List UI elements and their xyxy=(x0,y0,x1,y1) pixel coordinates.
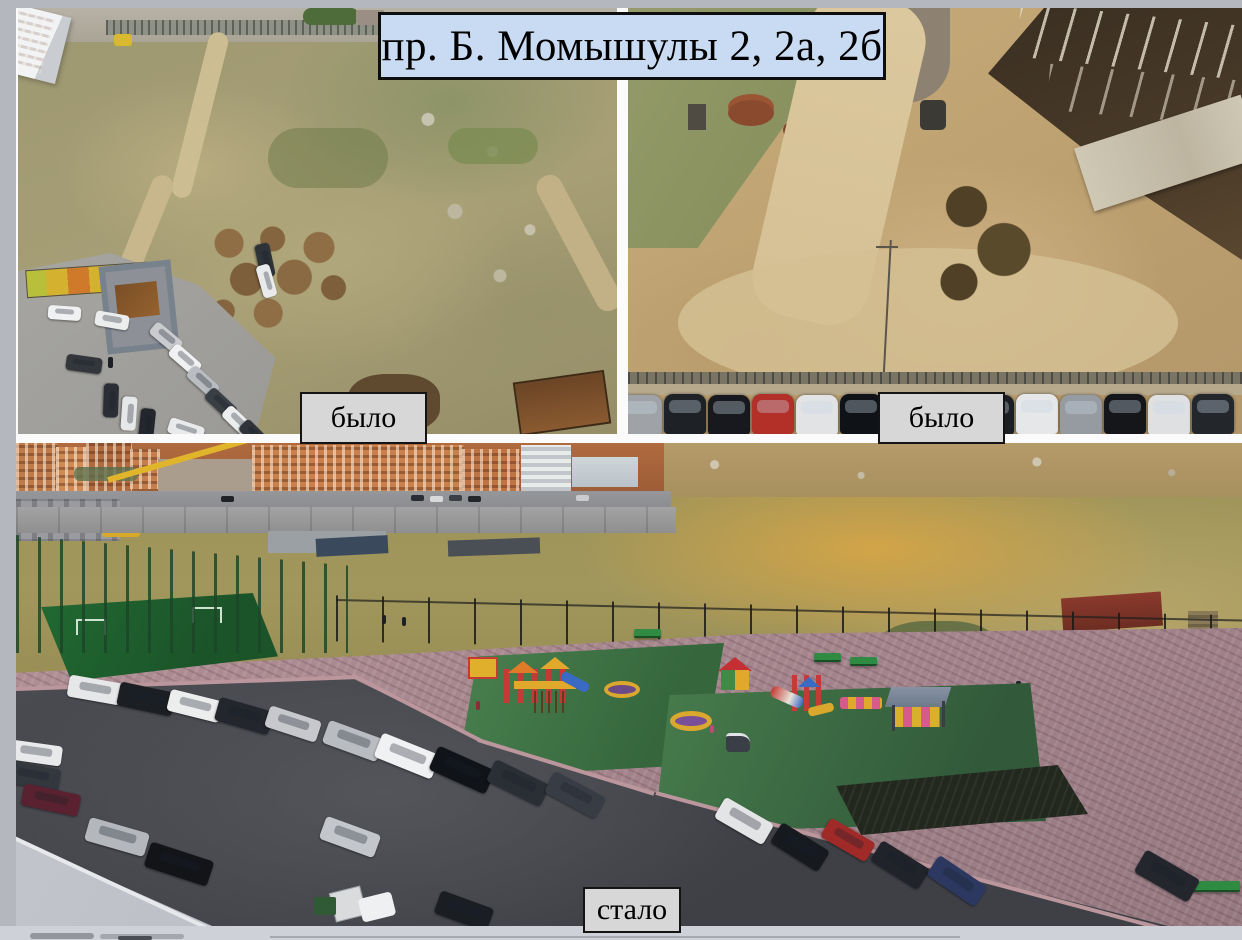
street-car xyxy=(576,495,589,501)
light-buildings xyxy=(572,457,638,487)
gazebo-post xyxy=(942,701,945,727)
slide-complex xyxy=(768,675,834,743)
spring-riders xyxy=(840,697,882,709)
thumbnail-sliver xyxy=(270,936,960,938)
rusty-shed xyxy=(513,370,612,434)
person xyxy=(108,357,113,368)
brick-building xyxy=(16,443,58,493)
sports-fence-posts xyxy=(16,535,348,653)
car xyxy=(1016,394,1058,434)
soil-piles xyxy=(914,178,1064,308)
dark-trailer xyxy=(448,537,541,556)
building-windows xyxy=(18,9,55,74)
car xyxy=(1192,394,1234,434)
car xyxy=(752,394,794,434)
pipe-rings xyxy=(728,100,774,126)
white-building xyxy=(521,445,571,491)
site-fence xyxy=(628,372,1242,384)
rusty-structure xyxy=(115,281,160,319)
gazebo-post xyxy=(892,705,895,731)
street-car xyxy=(430,496,443,502)
child xyxy=(476,701,480,710)
playhouse xyxy=(716,657,754,691)
play-structure xyxy=(504,651,590,717)
dumpster xyxy=(314,897,336,915)
carousel xyxy=(670,711,712,731)
sports-field xyxy=(16,535,348,685)
car xyxy=(1104,394,1146,434)
school-building xyxy=(252,445,464,495)
caption-before-right: было xyxy=(878,392,1005,444)
street-car xyxy=(221,496,234,502)
photo-after xyxy=(16,443,1242,926)
car xyxy=(103,383,119,418)
gazebo xyxy=(888,687,948,733)
yellow-machine xyxy=(114,34,132,46)
bench xyxy=(814,653,841,662)
thumbnail-sliver xyxy=(118,936,152,940)
bench xyxy=(850,657,877,666)
crate xyxy=(688,104,706,130)
excavator xyxy=(920,100,946,130)
car xyxy=(628,395,662,434)
car xyxy=(1060,395,1102,434)
trees xyxy=(303,8,359,25)
rubble-slope xyxy=(656,443,1242,497)
person xyxy=(402,617,406,626)
car xyxy=(708,395,750,434)
rope-climb xyxy=(534,691,568,713)
debris-speckles xyxy=(410,78,560,308)
play-roof xyxy=(540,657,570,669)
play-roof xyxy=(508,661,538,673)
car xyxy=(138,408,156,434)
utility-pole-crossarm xyxy=(876,246,898,248)
car xyxy=(1148,395,1190,434)
stroller xyxy=(726,733,750,752)
brick-building xyxy=(462,449,520,493)
caption-after: стало xyxy=(583,887,681,933)
playhouse-roof xyxy=(718,657,752,671)
caption-before-left: было xyxy=(300,392,427,444)
street-car xyxy=(411,495,424,501)
carousel xyxy=(604,681,640,698)
sandbox-canopy xyxy=(468,657,498,679)
street-car xyxy=(449,495,462,501)
street-car xyxy=(468,496,481,502)
photo-collage: пр. Б. Момышулы 2, 2а, 2б было было стал… xyxy=(0,0,1242,940)
child xyxy=(710,725,714,733)
bench xyxy=(1192,881,1240,892)
concrete-wall xyxy=(16,507,676,533)
car xyxy=(796,395,838,434)
car xyxy=(48,305,82,321)
address-banner: пр. Б. Момышулы 2, 2а, 2б xyxy=(378,12,886,80)
thumbnail-sliver xyxy=(30,933,94,939)
bench xyxy=(634,629,661,638)
car xyxy=(664,394,706,434)
shrub-patch xyxy=(448,128,538,164)
gazebo-benches xyxy=(894,707,940,727)
shrub-patch xyxy=(268,128,388,188)
car xyxy=(840,394,882,434)
car xyxy=(120,396,137,431)
person xyxy=(382,615,386,624)
playhouse-walls xyxy=(721,670,749,690)
